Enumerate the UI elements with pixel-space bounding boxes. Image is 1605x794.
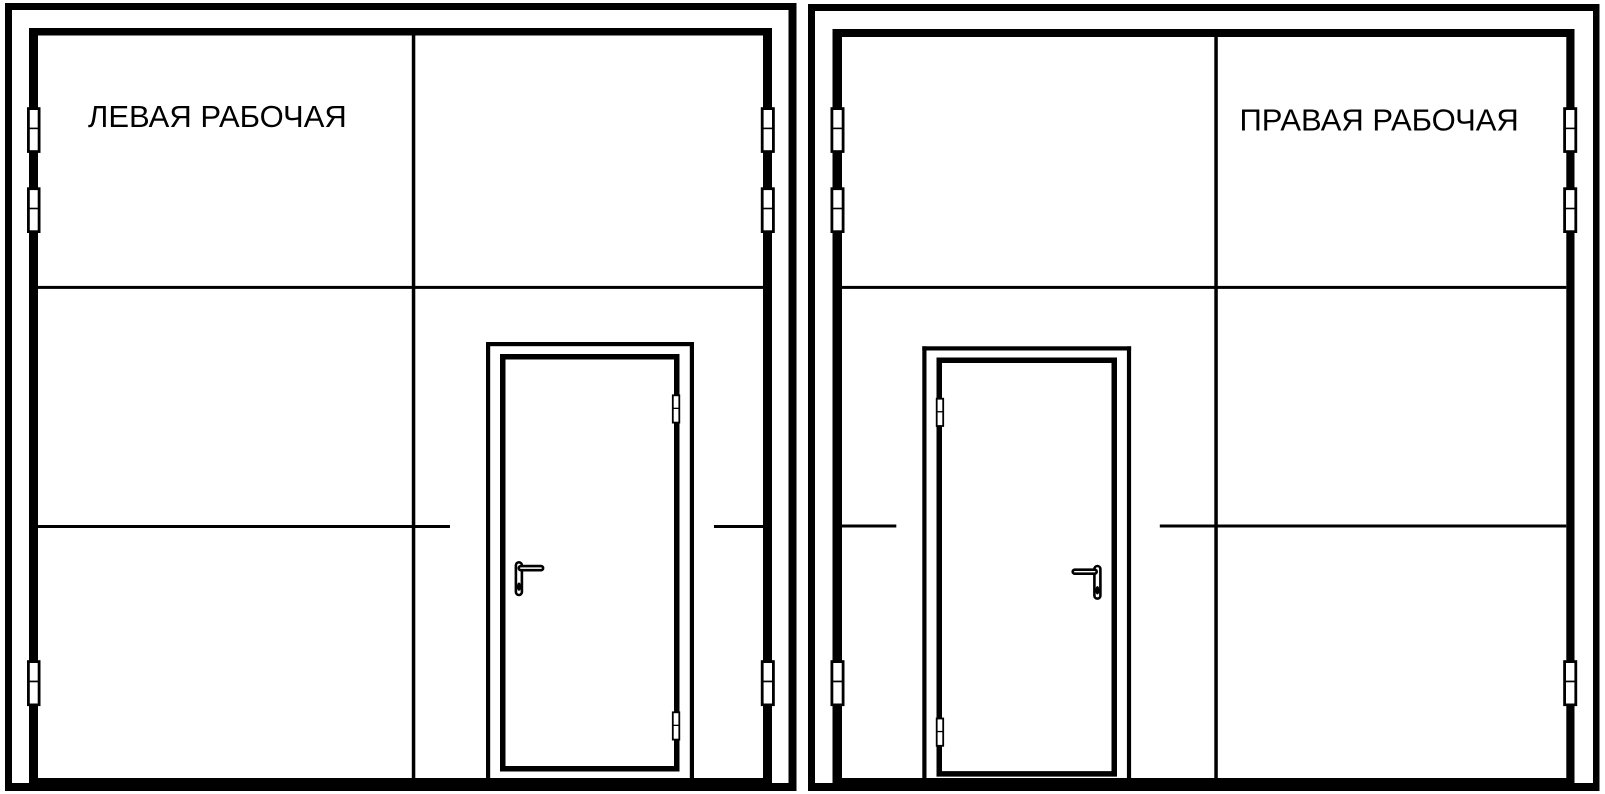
svg-text:ПРАВАЯ РАБОЧАЯ: ПРАВАЯ РАБОЧАЯ (1240, 103, 1519, 138)
svg-text:ЛЕВАЯ РАБОЧАЯ: ЛЕВАЯ РАБОЧАЯ (88, 99, 347, 134)
